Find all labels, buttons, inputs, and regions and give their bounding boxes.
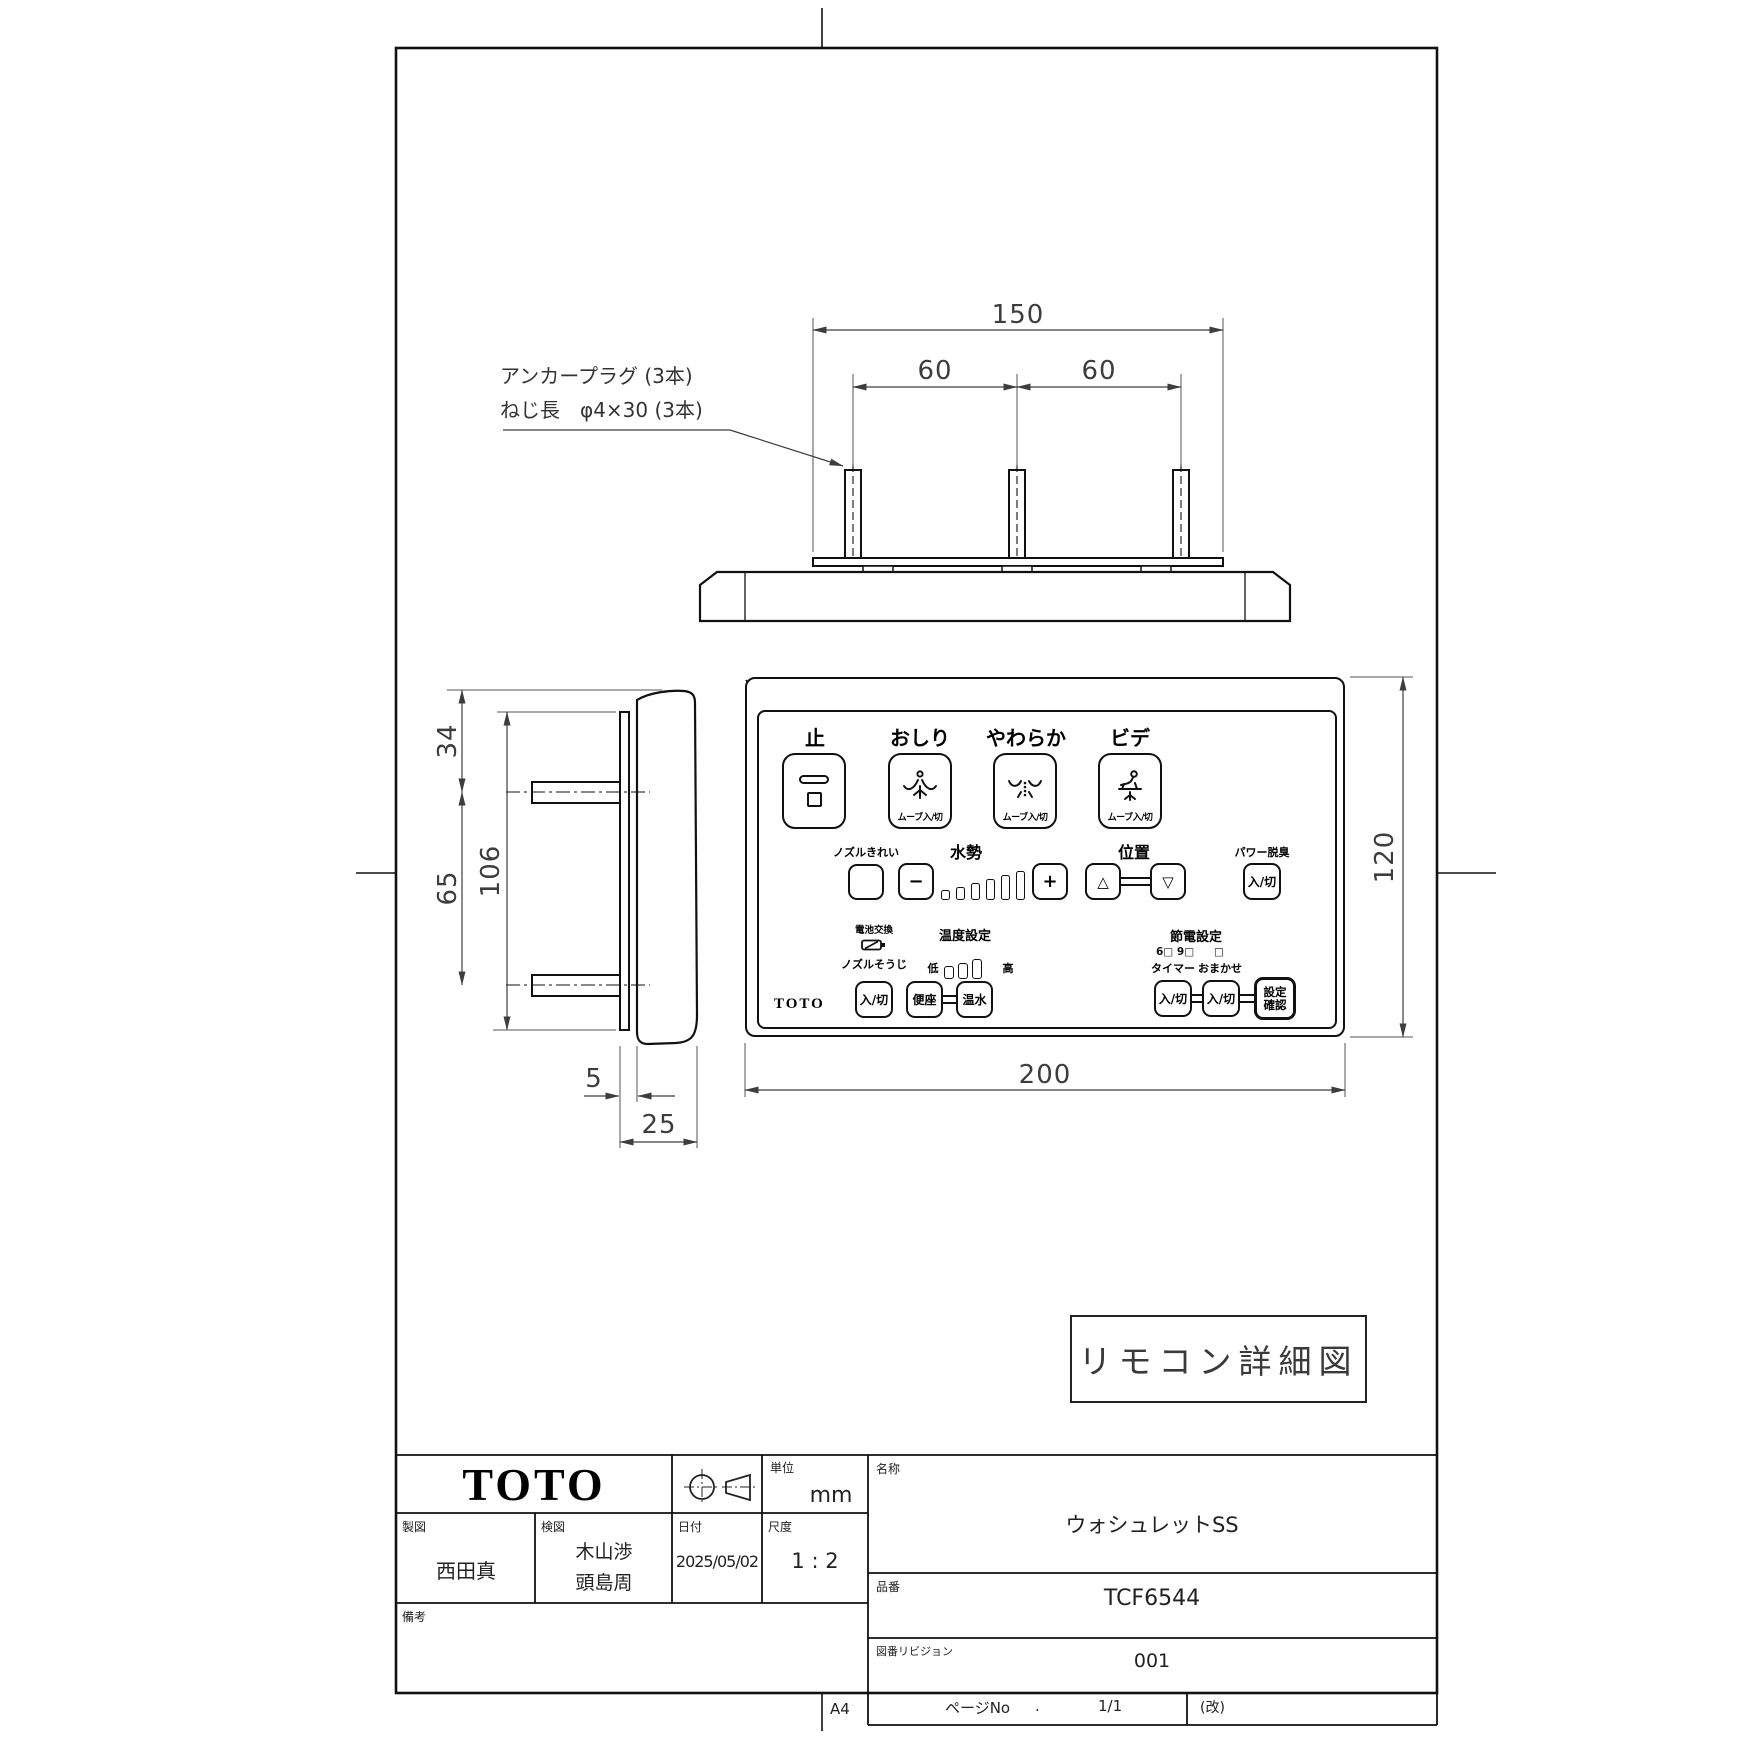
timer-label: タイマー	[1151, 960, 1195, 976]
side-view-geometry	[506, 691, 697, 1044]
top-view-dimension-lines	[503, 318, 1223, 552]
checker-label: 検図	[541, 1518, 565, 1535]
dim-34: 34	[433, 723, 463, 758]
water-temp-button: 温水	[956, 981, 993, 1018]
screw-length-note-line2: ねじ長 φ4×30 (3本)	[500, 394, 703, 423]
date-value: 2025/05/02	[676, 1552, 758, 1571]
projection-symbol-icon	[684, 1469, 756, 1505]
drawing-title-text: リモコン詳細図	[1079, 1335, 1359, 1383]
nozzle-clean-label: ノズルきれい	[833, 844, 899, 860]
position-up-button: △	[1085, 863, 1121, 900]
oshiri-move-onoff-label: ムーブ入/切	[890, 810, 950, 823]
page-no-dot: .	[1035, 1697, 1040, 1715]
leader-line	[730, 430, 843, 466]
stop-button	[782, 753, 846, 829]
oshiri-label: おしり	[890, 722, 950, 751]
mounting-plate-side	[620, 712, 629, 1030]
water-pressure-minus-button: −	[898, 863, 934, 900]
water-pressure-plus-button: +	[1032, 863, 1068, 900]
nozzle-wash-label: ノズルそうじ	[841, 956, 907, 972]
battery-change-label: 電池交換	[855, 922, 893, 936]
date-label: 日付	[678, 1518, 702, 1535]
energy-indicator-window-right: □	[1214, 946, 1224, 958]
nozzle-clean-button	[848, 864, 884, 900]
unit-label: 単位	[770, 1459, 794, 1476]
nozzle-wash-onoff-button: 入/切	[855, 981, 893, 1018]
dim-25: 25	[641, 1110, 676, 1140]
connector-line	[1240, 994, 1254, 1003]
energy-saving-label: 節電設定	[1170, 926, 1222, 945]
revision-mark: (改)	[1200, 1697, 1225, 1717]
stop-label: 止	[805, 722, 825, 751]
paper-format-label: A4	[830, 1700, 850, 1718]
power-deodorizer-onoff-button: 入/切	[1243, 863, 1281, 900]
water-pressure-label: 水勢	[950, 839, 982, 863]
revision-value: 001	[1134, 1650, 1170, 1672]
battery-icon	[861, 938, 887, 952]
stop-indicator-icon	[799, 775, 829, 784]
dim-200: 200	[1019, 1060, 1072, 1090]
timer-onoff-button: 入/切	[1154, 980, 1192, 1017]
position-label: 位置	[1118, 839, 1150, 863]
setting-confirm-line1: 設定	[1264, 986, 1287, 998]
dim-65: 65	[433, 870, 463, 905]
drawing-sheet: アンカープラグ (3本) ねじ長 φ4×30 (3本) 150 60 60 34…	[0, 0, 1754, 1754]
power-deodorizer-label: パワー脱臭	[1235, 844, 1290, 860]
connector-line	[1121, 877, 1150, 886]
drawing-title-stamp: リモコン詳細図	[1070, 1315, 1367, 1403]
dim-150: 150	[992, 300, 1045, 330]
oshiri-spray-icon	[900, 769, 940, 805]
temp-high-label: 高	[1003, 960, 1014, 976]
setting-confirm-button: 設定 確認	[1254, 977, 1296, 1020]
seat-temp-button: 便座	[906, 981, 943, 1018]
temperature-setting-label: 温度設定	[939, 925, 991, 944]
bidet-button: ムーブ入/切	[1098, 753, 1162, 829]
dim-60-right: 60	[1081, 356, 1116, 386]
soft-label: やわらか	[986, 722, 1066, 751]
bidet-label: ビデ	[1110, 722, 1150, 751]
remarks-label: 備考	[402, 1608, 426, 1625]
remote-brand-logo: TOTO	[774, 996, 825, 1013]
soft-button: ムーブ入/切	[993, 753, 1057, 829]
omakase-label: おまかせ	[1198, 960, 1242, 976]
position-down-button: ▽	[1150, 863, 1186, 900]
soft-spray-icon	[1005, 769, 1045, 805]
bidet-icon	[1110, 769, 1150, 805]
temp-low-label: 低	[928, 960, 939, 976]
water-level-bars	[941, 868, 1029, 900]
page-no-value: 1/1	[1098, 1697, 1122, 1715]
remote-body-top	[700, 572, 1290, 621]
scale-value: 1 : 2	[791, 1549, 838, 1573]
scale-label: 尺度	[768, 1518, 792, 1535]
setting-confirm-line2: 確認	[1264, 999, 1287, 1011]
name-label: 名称	[876, 1460, 900, 1477]
unit-value: mm	[810, 1483, 853, 1508]
checker-value-2: 頭島周	[575, 1568, 632, 1595]
revision-label: 図番リビジョン	[876, 1643, 953, 1659]
drafter-label: 製図	[402, 1518, 426, 1535]
temp-level-icons	[944, 955, 996, 979]
omakase-onoff-button: 入/切	[1202, 980, 1240, 1017]
dim-60-left: 60	[917, 356, 952, 386]
stop-square-icon	[807, 792, 822, 807]
dim-120: 120	[1370, 831, 1400, 884]
name-value: ウォシュレットSS	[1065, 1509, 1238, 1539]
connector-line	[943, 995, 956, 1004]
connector-line	[1192, 994, 1202, 1003]
part-no-value: TCF6544	[1104, 1586, 1200, 1611]
oshiri-button: ムーブ入/切	[888, 753, 952, 829]
dim-5: 5	[585, 1064, 603, 1094]
top-view-geometry	[700, 464, 1290, 621]
anchor-plug-note-line1: アンカープラグ (3本)	[500, 360, 693, 389]
drafter-value: 西田真	[436, 1555, 496, 1584]
page-no-label: ページNo	[945, 1697, 1010, 1718]
dim-106: 106	[476, 845, 506, 898]
soft-move-onoff-label: ムーブ入/切	[995, 810, 1055, 823]
remote-body-side	[637, 691, 697, 1044]
energy-indicator-windows: 6□ 9□	[1156, 946, 1194, 958]
brand-logo: TOTO	[396, 1458, 672, 1511]
checker-value-1: 木山渉	[575, 1537, 632, 1564]
mounting-plate-top	[813, 558, 1223, 566]
bidet-move-onoff-label: ムーブ入/切	[1100, 810, 1160, 823]
part-no-label: 品番	[876, 1578, 900, 1595]
